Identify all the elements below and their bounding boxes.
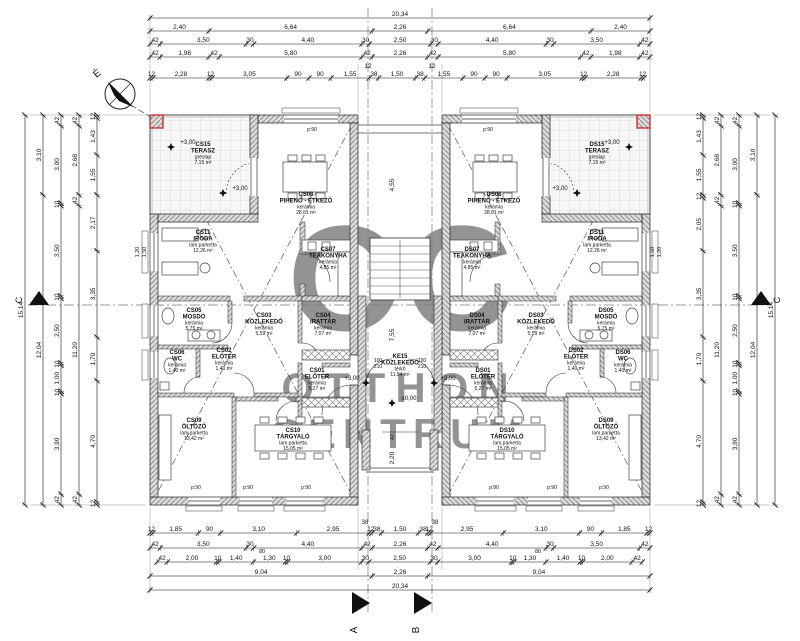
section-marker-left (29, 291, 49, 305)
dim-value: 1,55 (344, 71, 357, 78)
dim-value: 12 (696, 192, 703, 200)
dim-value: 4,40 (301, 37, 314, 44)
room-name: IRATTÁR (310, 319, 337, 326)
dim-value: 2,28 (607, 71, 620, 78)
highlighted-pier (150, 115, 163, 128)
aux-dim-label: 1,20 (657, 247, 663, 258)
dim-value: 42 (429, 50, 437, 57)
room-area: 7,15 m² (195, 160, 212, 166)
aux-dim-label: 38 (362, 520, 369, 526)
dim-value: 2,68 (72, 154, 79, 167)
parapet-label: p:90 (547, 485, 557, 491)
dim-value: 2,68 (714, 154, 721, 167)
room-code: CS06 (169, 350, 185, 356)
aux-dim-label: 42 (390, 434, 396, 440)
room-label: DS09ÖLTÖZŐlam.parketta13,42 m² (592, 418, 620, 442)
dim-value: 42 (633, 555, 641, 562)
aux-dim-label: 38 (432, 520, 439, 526)
room-name: PIHENŐ - ÉTKEZŐ (468, 197, 521, 205)
room-code: KE15 (392, 354, 408, 360)
dim-value: 2,50 (394, 37, 407, 44)
room-label: CS05MOSDÓkerámia5,75 m² (183, 308, 206, 332)
room-name: KÖZLEKEDŐ (245, 319, 283, 326)
dim-value: 3,05 (538, 71, 551, 78)
room-name: ELŐTÉR (305, 373, 330, 381)
room-area: 5,59 m² (256, 331, 273, 337)
room-code: CS08 (298, 192, 314, 198)
room-area: 13,42 m² (596, 436, 616, 442)
dim-value: 90 (316, 71, 324, 78)
dim-value: 42 (714, 496, 721, 504)
dim-value: 90 (470, 71, 478, 78)
section-marker-a (352, 592, 370, 614)
dim-value: 6,64 (284, 24, 297, 31)
room-area: 1,40 m² (216, 366, 233, 372)
aux-dim-label: 1,50 (142, 247, 148, 258)
dim-value: 1,40 (230, 555, 243, 562)
dim-value: 42 (152, 50, 160, 57)
room-code: DS04 (469, 313, 485, 319)
dim-value: 3,50 (590, 37, 603, 44)
dim-value: 1,00 (54, 372, 61, 385)
dim-value: 15,14 (18, 301, 25, 318)
dim-value: 42 (159, 555, 167, 562)
room-name: ELŐTÉR (564, 353, 589, 361)
dim-value: 42 (641, 541, 649, 548)
dim-value: 42 (429, 541, 437, 548)
dim-value: 30 (246, 541, 254, 548)
dim-value: 38 (417, 71, 425, 78)
dim-value: 42 (152, 37, 160, 44)
room-name: KÖZLEKEDŐ (381, 360, 419, 367)
section-marker-b (414, 592, 432, 614)
aux-dim-label: 1,20 (135, 247, 141, 258)
level-value: +3,00 (344, 376, 360, 382)
room-code: DS08 (486, 192, 502, 198)
level-value: +3,00 (232, 186, 248, 192)
dim-value: 1,70 (696, 352, 703, 365)
dim-value: 3,90 (54, 437, 61, 450)
dim-value: 1,55 (438, 71, 451, 78)
dim-value: 42 (72, 116, 79, 124)
room-area: 11,54 m² (390, 372, 410, 378)
room-label: DS03KÖZLEKEDŐkerámia5,59 m² (517, 313, 555, 337)
dim-value: 1,30 (524, 555, 537, 562)
dim-value: 42 (54, 496, 61, 504)
dim-value: 42 (152, 541, 160, 548)
dim-value: 1,43 (696, 130, 703, 143)
dim-value: 2,05 (696, 218, 703, 231)
dim-value: 2,40 (173, 24, 186, 31)
dim-value: 2,00 (186, 555, 199, 562)
floor-plan-svg: OC OTTHON CENTRUM (0, 0, 800, 641)
room-area: 5,75 m² (186, 326, 203, 332)
dim-value: 4,40 (486, 37, 499, 44)
aux-dim-label: 4,55 (389, 178, 396, 191)
dim-value: 42 (641, 50, 649, 57)
dim-value: 1,00 (732, 372, 739, 385)
parapet-label: p:90 (301, 485, 311, 491)
dim-value: 12 (696, 113, 703, 121)
dim-value: 1,55 (696, 168, 703, 181)
dim-value: 9,04 (255, 569, 268, 576)
dim-value: 5,80 (503, 50, 516, 57)
dim-value: 2,50 (732, 324, 739, 337)
room-code: CS05 (186, 308, 202, 314)
dim-value: 2,26 (394, 24, 407, 31)
dim-value: 3,00 (318, 555, 331, 562)
dim-value: 3,50 (590, 541, 603, 548)
room-code: DS01 (475, 368, 491, 374)
room-code: CS02 (216, 348, 232, 354)
room-label: DS06WCkerámia1,40 m² (614, 350, 632, 374)
dim-value: 3,90 (732, 437, 739, 450)
room-code: DS02 (568, 348, 584, 354)
dim-value: 90 (294, 71, 302, 78)
room-label: CS06WCkerámia1,40 m² (168, 350, 186, 374)
dim-value: 38 (373, 526, 381, 533)
room-code: DS03 (528, 313, 544, 319)
dim-value: 3,00 (54, 158, 61, 171)
dim-value: 3,00 (468, 555, 481, 562)
dim-value: 20,34 (392, 583, 409, 590)
dim-value: 2,95 (461, 526, 474, 533)
room-code: DS11 (590, 230, 605, 236)
dim-value: 42 (363, 50, 371, 57)
parapet-label: p:90 (483, 127, 493, 133)
room-area: 1,40 m² (568, 366, 585, 372)
dim-value: 4,70 (90, 435, 97, 448)
room-name: TÁRGYALÓ (490, 433, 523, 441)
dim-value: 12,04 (750, 341, 757, 358)
room-code: CS11 (196, 230, 211, 236)
dim-value: 3,35 (696, 287, 703, 300)
room-area: 28,61 m² (484, 210, 504, 216)
room-code: DS09 (598, 418, 614, 424)
room-code: CS09 (186, 418, 202, 424)
dim-value: 12 (90, 113, 97, 121)
dim-value: 42 (641, 37, 649, 44)
dim-value: 2,26 (394, 541, 407, 548)
dim-value: 3,10 (535, 526, 548, 533)
dim-value: 3,10 (252, 526, 265, 533)
dim-value: 30 (546, 541, 554, 548)
room-name: ÖLTÖZŐ (182, 424, 207, 431)
room-code: CS04 (315, 313, 331, 319)
dim-value: 42 (72, 196, 79, 204)
room-name: PIHENŐ - ÉTKEZŐ (280, 197, 333, 205)
room-label: CS09ÖLTÖZŐlam.parketta13,42 m² (180, 418, 208, 442)
room-area: 1,40 m² (169, 368, 186, 374)
dim-value: 3,10 (36, 148, 43, 161)
aux-dim-label: 1,50 (650, 247, 656, 258)
dim-value: 2,26 (394, 569, 407, 576)
section-marker-a-label: A (349, 626, 360, 633)
parapet-label: p:90 (307, 127, 317, 133)
room-area: 28,61 m² (296, 210, 316, 216)
aux-dim-label: 80 (259, 549, 265, 555)
room-name: TÁRGYALÓ (276, 433, 309, 441)
dim-value: 30 (546, 37, 554, 44)
aux-dim-label: 12 (364, 63, 372, 70)
room-name: ELŐTÉR (212, 353, 237, 361)
dim-value: 5,80 (284, 50, 297, 57)
room-code: CS10 (285, 428, 301, 434)
room-name: MOSDÓ (183, 313, 206, 321)
dim-value: 6,64 (503, 24, 516, 31)
aux-dim-label: 12 (428, 63, 436, 70)
dim-value: 1,98 (178, 50, 191, 57)
room-label: DS02ELŐTÉRkerámia1,40 m² (564, 348, 589, 372)
room-code: CS01 (309, 368, 325, 374)
aux-dim-label: 7,55 (389, 328, 396, 341)
room-code: DS06 (615, 350, 631, 356)
north-label: É (90, 66, 104, 80)
room-area: 7,07 m² (315, 331, 332, 337)
room-code: CS03 (256, 313, 272, 319)
room-area: 1,40 m² (615, 368, 632, 374)
parapet-label: p:90 (191, 485, 201, 491)
dim-value: 1,43 (90, 130, 97, 143)
dim-value: 1,70 (90, 352, 97, 365)
dim-value: 3,50 (54, 244, 61, 257)
dim-value: 1,50 (394, 526, 407, 533)
dim-value: 2,26 (394, 50, 407, 57)
parapet-label: p:90 (243, 485, 253, 491)
dim-value: 3,50 (197, 541, 210, 548)
room-area: 4,85 m² (320, 265, 337, 271)
watermark: OC OTTHON CENTRUM (271, 194, 530, 457)
dim-value: 38 (370, 71, 378, 78)
dim-value: 12 (696, 499, 703, 507)
section-marker-b-label: B (411, 626, 422, 633)
room-area: 15,05 m² (497, 446, 517, 452)
room-name: ÖLTÖZŐ (594, 424, 619, 431)
room-label: DS05MOSDÓkerámia5,75 m² (595, 308, 618, 332)
dim-value: 90 (587, 526, 595, 533)
room-area: 5,27 m² (475, 386, 492, 392)
dim-value: 42 (211, 50, 219, 57)
room-area: 7,15 m² (589, 160, 606, 166)
dim-value: 4,40 (301, 541, 314, 548)
room-area: 13,42 m² (184, 436, 204, 442)
dim-value: 4,40 (486, 541, 499, 548)
aux-dim-label: 80 (535, 549, 541, 555)
dim-value: 30 (246, 37, 254, 44)
dim-value: 30 (430, 555, 438, 562)
dim-value: 12 (90, 499, 97, 507)
room-code: DS15 (589, 142, 605, 148)
dim-value: 15,14 (768, 301, 775, 318)
dim-value: 2,95 (327, 526, 340, 533)
parapet-label: p:90 (489, 485, 499, 491)
room-area: 15,05 m² (283, 446, 303, 452)
level-value: +3,00 (180, 140, 196, 146)
room-code: DS05 (598, 308, 614, 314)
dim-value: 42 (582, 50, 590, 57)
dim-value: 2,40 (614, 24, 627, 31)
dim-value: 42 (714, 116, 721, 124)
dim-value: 4,70 (696, 435, 703, 448)
dim-value: 42 (714, 196, 721, 204)
level-value: +3,00 (552, 186, 568, 192)
aux-dim-label: 210 (418, 364, 427, 370)
room-area: 12,26 m² (193, 248, 213, 254)
room-name: MOSDÓ (595, 313, 618, 321)
room-code: CS15 (195, 142, 211, 148)
dim-value: 11,20 (714, 342, 721, 358)
dim-value: 2,50 (54, 324, 61, 337)
room-name: KÖZLEKEDŐ (517, 319, 555, 326)
aux-dim-label: 210 (374, 364, 383, 370)
dim-value: 30 (431, 37, 439, 44)
dim-value: 42 (732, 116, 739, 124)
dim-value: 2,00 (601, 555, 614, 562)
level-value: ±0,00 (402, 396, 418, 402)
room-area: 5,75 m² (598, 326, 615, 332)
room-code: CS07 (320, 247, 336, 253)
aux-dim-label: 2,20 (389, 451, 396, 464)
dim-value: 11,20 (72, 342, 79, 358)
dim-value: 1,55 (90, 168, 97, 181)
dim-value: 1,98 (609, 50, 622, 57)
room-name: IRATTÁR (464, 319, 491, 326)
dim-value: 9,04 (533, 569, 546, 576)
level-value: +3,00 (604, 140, 620, 146)
dim-value: 3,05 (243, 71, 256, 78)
room-area: 12,26 m² (587, 248, 607, 254)
dim-value: 2,50 (393, 555, 406, 562)
room-name: ELŐTÉR (471, 373, 496, 381)
dim-value: 90 (206, 526, 214, 533)
dim-value: 20,34 (392, 11, 409, 18)
dim-value: 3,00 (732, 158, 739, 171)
dim-value: 3,50 (732, 244, 739, 257)
parapet-label: p:90 (599, 485, 609, 491)
dim-value: 42 (72, 496, 79, 504)
dim-value: 1,85 (618, 526, 631, 533)
room-area: 5,59 m² (528, 331, 545, 337)
room-area: 7,07 m² (469, 331, 486, 337)
dim-value: 1,85 (169, 526, 182, 533)
dim-value: 12,04 (36, 341, 43, 358)
dim-value: 42 (363, 541, 371, 548)
room-label: CS03KÖZLEKEDŐkerámia5,59 m² (245, 313, 283, 337)
level-value: +3,00 (440, 376, 456, 382)
dim-value: 30 (362, 555, 370, 562)
dim-value: 30 (362, 37, 370, 44)
dim-value: 2,17 (90, 216, 97, 229)
dim-value: 90 (492, 71, 500, 78)
room-area: 4,85 m² (464, 265, 481, 271)
dim-value: 3,50 (197, 37, 210, 44)
room-code: DS10 (499, 428, 515, 434)
dim-value: 1,50 (391, 71, 404, 78)
dim-value: 2,28 (175, 71, 188, 78)
dim-value: 42 (732, 496, 739, 504)
room-area: 5,27 m² (309, 386, 326, 392)
floor-plan-page: OC OTTHON CENTRUM (0, 0, 800, 641)
dim-value: 1,30 (263, 555, 276, 562)
north-arrow: É (90, 66, 152, 118)
room-code: DS07 (464, 247, 480, 253)
room-label: CS02ELŐTÉRkerámia1,40 m² (212, 348, 237, 372)
dim-value: 3,10 (750, 148, 757, 161)
dim-value: 1,40 (557, 555, 570, 562)
dim-value: 3,35 (90, 287, 97, 300)
dim-value: 42 (54, 116, 61, 124)
